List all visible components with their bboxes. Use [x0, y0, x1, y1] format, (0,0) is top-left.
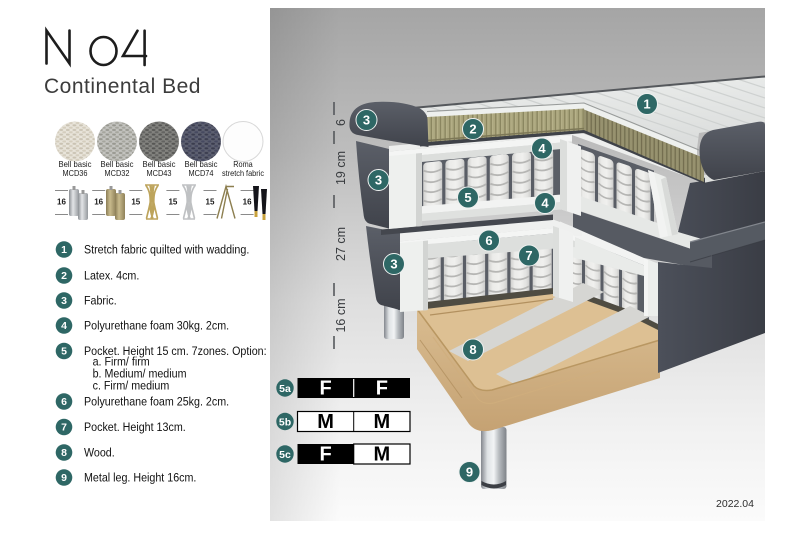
svg-text:M: M [317, 411, 334, 433]
svg-text:16: 16 [94, 198, 103, 207]
svg-text:4: 4 [541, 196, 549, 211]
svg-text:1: 1 [643, 97, 650, 112]
svg-text:2: 2 [61, 270, 67, 282]
svg-text:27 cm: 27 cm [334, 227, 348, 261]
svg-text:8: 8 [469, 342, 476, 357]
svg-text:4: 4 [538, 141, 546, 156]
svg-text:c. Firm/ medium: c. Firm/ medium [93, 379, 170, 393]
svg-text:MCD74: MCD74 [189, 168, 214, 178]
svg-text:2022.04: 2022.04 [716, 498, 754, 510]
svg-text:3: 3 [363, 113, 370, 128]
svg-text:6: 6 [485, 233, 492, 248]
svg-text:M: M [373, 444, 390, 466]
svg-text:M: M [373, 411, 390, 433]
svg-text:Polyurethane foam 25kg. 2cm.: Polyurethane foam 25kg. 2cm. [84, 395, 229, 409]
svg-text:6: 6 [334, 119, 348, 126]
svg-text:Pocket. Height 13cm.: Pocket. Height 13cm. [84, 420, 186, 434]
svg-text:Latex. 4cm.: Latex. 4cm. [84, 269, 139, 283]
svg-text:1: 1 [61, 244, 67, 256]
svg-text:16: 16 [57, 198, 66, 207]
svg-text:4: 4 [61, 320, 67, 332]
svg-text:15: 15 [168, 198, 177, 207]
svg-text:15: 15 [206, 198, 215, 207]
svg-text:19 cm: 19 cm [334, 151, 348, 185]
svg-text:Stretch fabric quilted with wa: Stretch fabric quilted with wadding. [84, 243, 249, 257]
svg-text:15: 15 [131, 198, 140, 207]
svg-text:5: 5 [61, 346, 67, 358]
svg-text:F: F [319, 444, 331, 466]
svg-text:F: F [319, 378, 331, 400]
svg-text:8: 8 [61, 447, 67, 459]
svg-text:16: 16 [243, 198, 252, 207]
svg-text:5b: 5b [279, 416, 291, 428]
svg-text:Continental Bed: Continental Bed [44, 75, 201, 98]
svg-text:9: 9 [466, 465, 473, 480]
svg-text:Polyurethane foam 30kg. 2cm.: Polyurethane foam 30kg. 2cm. [84, 319, 229, 333]
svg-text:MCD36: MCD36 [63, 168, 88, 178]
svg-text:9: 9 [61, 472, 67, 484]
svg-text:stretch fabric: stretch fabric [222, 168, 265, 178]
svg-text:Wood.: Wood. [84, 446, 115, 460]
svg-text:5c: 5c [279, 449, 291, 461]
svg-text:MCD43: MCD43 [147, 168, 172, 178]
svg-text:5a: 5a [279, 383, 291, 395]
svg-text:F: F [376, 378, 388, 400]
svg-text:7: 7 [525, 248, 532, 263]
svg-text:3: 3 [375, 173, 382, 188]
svg-text:2: 2 [469, 122, 476, 137]
svg-text:6: 6 [61, 396, 67, 408]
svg-text:16 cm: 16 cm [334, 298, 348, 332]
svg-text:3: 3 [390, 257, 397, 272]
svg-text:MCD32: MCD32 [105, 168, 130, 178]
svg-text:3: 3 [61, 295, 67, 307]
svg-text:Metal leg. Height 16cm.: Metal leg. Height 16cm. [84, 471, 196, 485]
svg-text:Fabric.: Fabric. [84, 294, 117, 308]
svg-text:5: 5 [464, 190, 471, 205]
svg-text:7: 7 [61, 422, 67, 434]
